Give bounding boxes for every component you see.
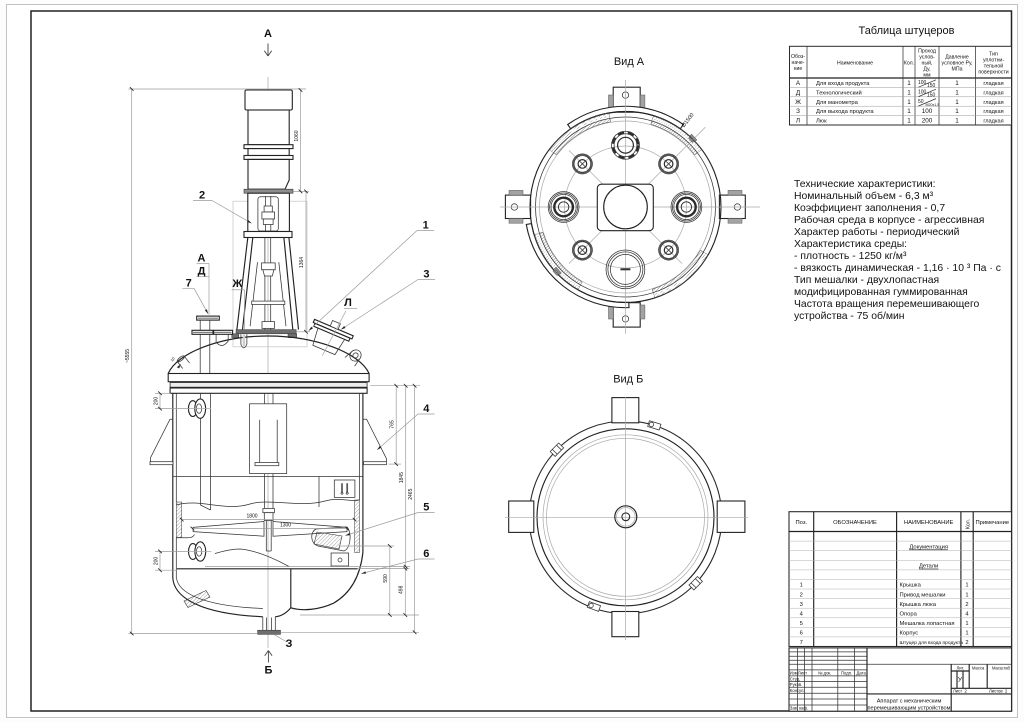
svg-text:5: 5 (800, 621, 803, 627)
svg-text:Б: Б (264, 665, 272, 677)
svg-text:- вязкость динамическая - 1,16: - вязкость динамическая - 1,16 · 10 ³ Па… (794, 263, 1001, 274)
svg-text:Кол.: Кол. (904, 61, 914, 67)
svg-text:590: 590 (383, 574, 389, 583)
svg-text:1300: 1300 (280, 523, 291, 529)
svg-text:гладкая: гладкая (983, 81, 1003, 87)
svg-text:Тип мешалки - двухлопастная: Тип мешалки - двухлопастная (794, 275, 939, 286)
svg-text:Для входа продукта: Для входа продукта (816, 81, 870, 87)
svg-text:- плотность - 1250 кг/м³: - плотность - 1250 кг/м³ (794, 251, 907, 262)
svg-text:ный,: ный, (922, 60, 933, 67)
svg-text:1364: 1364 (299, 257, 305, 268)
svg-text:50: 50 (918, 99, 924, 105)
svg-text:Технические характеристики:: Технические характеристики: (794, 179, 936, 190)
svg-text:Поз.: Поз. (796, 520, 808, 526)
svg-text:Характеристика среды:: Характеристика среды: (794, 239, 907, 250)
svg-text:3: 3 (423, 269, 429, 281)
svg-text:Привод мешалки: Привод мешалки (900, 592, 946, 598)
svg-text:Дата: Дата (857, 671, 867, 676)
svg-text:1: 1 (955, 89, 959, 96)
svg-text:2: 2 (965, 602, 968, 608)
svg-text:1: 1 (907, 80, 911, 87)
svg-text:150: 150 (927, 93, 936, 99)
svg-text:М20х1,5: М20х1,5 (926, 103, 940, 107)
svg-text:1: 1 (800, 583, 803, 589)
svg-text:Масштаб: Масштаб (992, 665, 1011, 670)
svg-text:гладкая: гладкая (983, 119, 1003, 125)
svg-text:~5555: ~5555 (125, 349, 131, 363)
svg-text:Д: Д (198, 266, 206, 278)
svg-text:Мешалка лопастная: Мешалка лопастная (900, 621, 955, 627)
svg-text:Подп.: Подп. (841, 671, 852, 676)
svg-text:Аппарат с механическим: Аппарат с механическим (877, 699, 942, 705)
svg-text:2: 2 (800, 592, 803, 598)
svg-text:ОБОЗНАЧЕНИЕ: ОБОЗНАЧЕНИЕ (833, 520, 877, 526)
svg-text:поверхности: поверхности (978, 70, 1008, 76)
svg-text:Л: Л (796, 118, 800, 125)
svg-text:№ док.: № док. (818, 671, 831, 676)
svg-text:ние: ние (794, 66, 803, 72)
svg-text:1: 1 (955, 99, 959, 106)
svg-text:1: 1 (907, 108, 911, 115)
svg-text:1: 1 (907, 118, 911, 125)
svg-text:100: 100 (922, 108, 933, 115)
svg-text:Коэффициент заполнения - 0,7: Коэффициент заполнения - 0,7 (794, 202, 945, 214)
svg-text:1: 1 (955, 108, 959, 115)
svg-text:Детали: Детали (919, 564, 938, 570)
svg-text:200: 200 (154, 557, 160, 566)
svg-text:МПа: МПа (952, 67, 963, 73)
svg-text:Лист: Лист (798, 671, 807, 676)
svg-text:модифицированная гуммированная: модифицированная гуммированная (794, 286, 968, 298)
svg-text:Люк: Люк (816, 119, 827, 125)
svg-text:Листов: Листов (989, 688, 1003, 693)
svg-text:гладкая: гладкая (983, 100, 1003, 106)
svg-text:З: З (796, 108, 800, 115)
svg-text:1: 1 (907, 89, 911, 96)
svg-text:Опора: Опора (900, 612, 918, 618)
svg-text:Зав. каф.: Зав. каф. (790, 706, 808, 711)
svg-text:Изм: Изм (790, 671, 798, 676)
svg-text:Таблица штуцеров: Таблица штуцеров (858, 25, 954, 37)
svg-text:6: 6 (423, 548, 429, 560)
svg-text:Характер работы - периодически: Характер работы - периодический (794, 226, 960, 238)
svg-text:Студ.: Студ. (790, 676, 801, 681)
svg-text:Л: Л (344, 297, 352, 309)
svg-text:Д: Д (796, 89, 801, 96)
svg-text:Номинальный объем - 6,3 м³: Номинальный объем - 6,3 м³ (794, 190, 934, 202)
svg-text:Крышка люка: Крышка люка (900, 602, 937, 608)
svg-text:гладкая: гладкая (983, 90, 1003, 96)
svg-text:100: 100 (918, 89, 927, 95)
svg-text:1: 1 (965, 583, 968, 589)
svg-text:5: 5 (423, 502, 429, 514)
svg-text:мм: мм (923, 73, 931, 79)
svg-text:Частота вращения перемешивающе: Частота вращения перемешивающего (794, 299, 980, 310)
svg-text:Консул.: Консул. (790, 688, 805, 693)
svg-text:498: 498 (399, 585, 405, 594)
svg-text:Документация: Документация (909, 545, 948, 551)
svg-text:1: 1 (955, 118, 959, 125)
svg-text:1060: 1060 (294, 130, 300, 141)
svg-text:6: 6 (800, 631, 803, 637)
svg-text:тельной: тельной (984, 63, 1004, 70)
svg-text:1: 1 (965, 592, 968, 598)
svg-text:Корпус: Корпус (900, 631, 919, 637)
svg-text:200: 200 (154, 397, 160, 406)
svg-text:2: 2 (965, 640, 968, 646)
svg-text:Вид Б: Вид Б (613, 374, 643, 386)
svg-text:гладкая: гладкая (983, 109, 1003, 115)
svg-text:1: 1 (965, 621, 968, 627)
svg-text:3: 3 (800, 602, 803, 608)
svg-text:2: 2 (199, 190, 205, 202)
svg-text:Кол.: Кол. (966, 519, 972, 529)
svg-text:1: 1 (965, 631, 968, 637)
svg-text:150: 150 (927, 83, 936, 89)
svg-text:Лист: Лист (953, 688, 962, 693)
svg-text:Для выхода продукта: Для выхода продукта (816, 109, 874, 115)
svg-text:1: 1 (907, 99, 911, 106)
svg-text:1: 1 (423, 220, 429, 232)
svg-text:устройства - 75 об/мин: устройства - 75 об/мин (794, 310, 905, 322)
svg-text:7: 7 (186, 278, 192, 290)
svg-text:1: 1 (955, 80, 959, 87)
svg-text:1845: 1845 (399, 472, 405, 483)
svg-text:Примечание: Примечание (976, 520, 1010, 526)
svg-text:З: З (286, 638, 293, 650)
svg-text:А: А (198, 253, 206, 265)
svg-text:перемешивающим устройством: перемешивающим устройством (868, 704, 951, 711)
svg-text:Технологический: Технологический (816, 89, 862, 96)
svg-text:Масса: Масса (972, 665, 985, 670)
svg-text:Ж: Ж (231, 278, 242, 290)
svg-text:Вид А: Вид А (614, 56, 645, 68)
svg-text:Штуцер для входа продукта: Штуцер для входа продукта (900, 640, 964, 646)
svg-text:Крышка: Крышка (900, 583, 922, 589)
svg-text:НАИМЕНОВАНИЕ: НАИМЕНОВАНИЕ (904, 520, 954, 526)
svg-text:Лит.: Лит. (957, 665, 965, 670)
svg-text:2465: 2465 (408, 488, 414, 499)
svg-text:Наименование: Наименование (837, 61, 873, 67)
svg-text:7: 7 (800, 640, 803, 646)
svg-text:А: А (264, 28, 272, 40)
svg-text:765: 765 (390, 420, 396, 429)
svg-text:Ж: Ж (795, 99, 801, 106)
svg-text:Рабочая среда в корпусе - агре: Рабочая среда в корпусе - агрессивная (794, 214, 984, 226)
svg-text:1800: 1800 (246, 514, 257, 520)
svg-text:200: 200 (922, 118, 933, 125)
svg-text:Для манометра: Для манометра (816, 100, 859, 106)
svg-text:4: 4 (423, 403, 430, 415)
svg-text:100: 100 (918, 80, 927, 86)
svg-text:Руков.: Руков. (790, 682, 802, 687)
